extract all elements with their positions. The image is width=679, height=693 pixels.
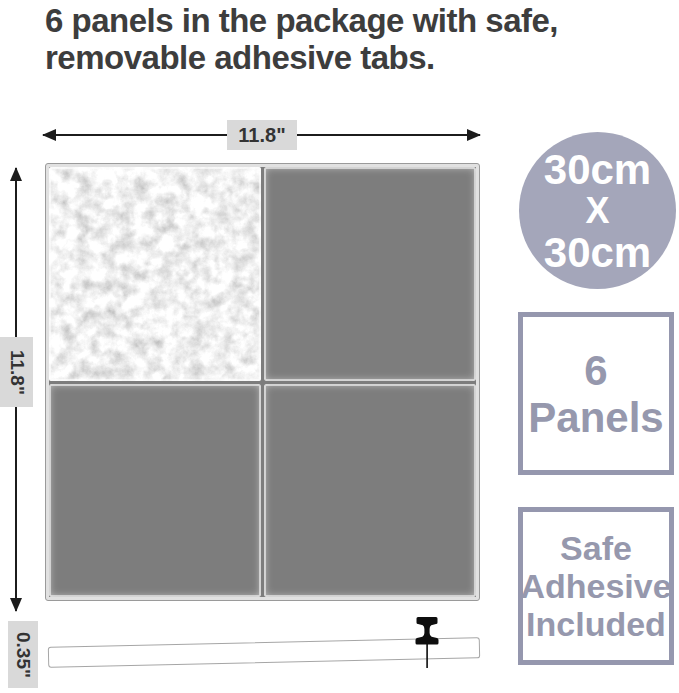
felt-quadrant [49, 167, 261, 381]
height-dimension-label: 11.8" [0, 337, 33, 407]
adhesive-line3: Included [526, 605, 666, 643]
thickness-dimension-label: 0.35" [8, 621, 38, 688]
panel-count-word: Panels [528, 394, 663, 441]
headline-line2: removable adhesive tabs. [45, 39, 435, 76]
panel-count-number: 6 [584, 347, 607, 394]
size-line-2: 30cm [544, 231, 651, 274]
headline-line1: 6 panels in the package with safe, [45, 2, 558, 39]
product-infographic: 6 panels in the package with safe, remov… [0, 0, 679, 693]
size-line-x: X [585, 191, 609, 231]
adhesive-line2: Adhesive [520, 567, 671, 605]
adhesive-line1: Safe [560, 529, 632, 567]
arrowhead-left-icon [42, 129, 56, 141]
headline: 6 panels in the package with safe, remov… [45, 2, 558, 76]
panel-count-badge: 6 Panels [518, 312, 674, 475]
felt-panel-photo [45, 163, 480, 601]
size-line-1: 30cm [544, 148, 651, 191]
arrowhead-up-icon [10, 167, 22, 181]
size-circle-badge: 30cm X 30cm [519, 132, 676, 289]
arrowhead-down-icon [10, 598, 22, 612]
felt-quadrant [264, 384, 476, 598]
pushpin-icon [413, 616, 441, 670]
width-dimension-label: 11.8" [227, 120, 297, 150]
adhesive-badge: Safe Adhesive Included [518, 507, 674, 665]
arrowhead-right-icon [467, 129, 481, 141]
felt-panel-grid [49, 167, 476, 597]
felt-quadrant [49, 384, 261, 598]
felt-quadrant [264, 167, 476, 381]
